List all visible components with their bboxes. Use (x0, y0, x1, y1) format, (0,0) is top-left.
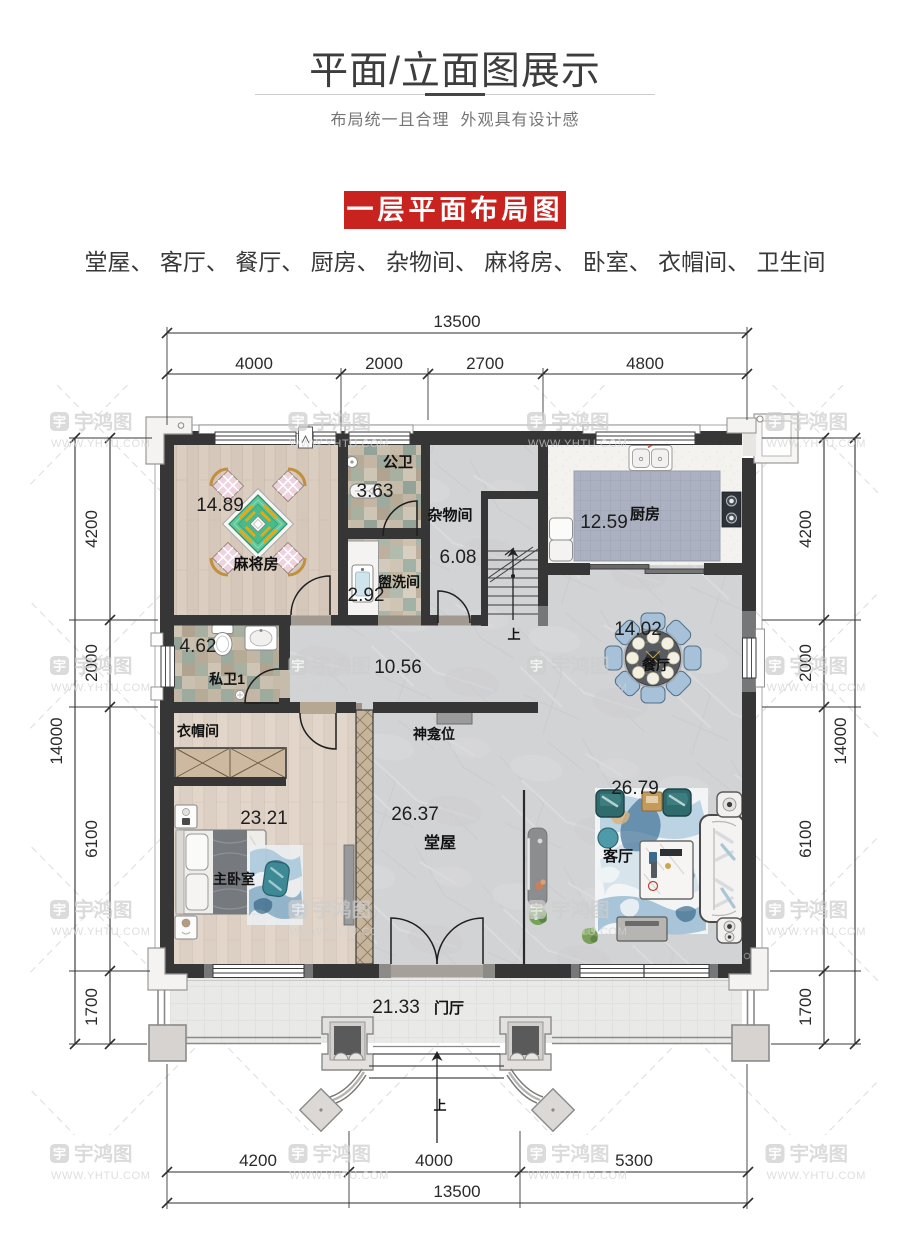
svg-text:3.63: 3.63 (357, 481, 394, 502)
svg-text:杂物间: 杂物间 (427, 506, 472, 524)
svg-text:门厅: 门厅 (434, 999, 464, 1017)
svg-text:14000: 14000 (47, 717, 66, 764)
svg-text:衣帽间: 衣帽间 (177, 723, 219, 739)
svg-text:2700: 2700 (466, 354, 504, 373)
svg-text:26.79: 26.79 (611, 778, 659, 799)
svg-text:26.37: 26.37 (391, 804, 439, 825)
svg-text:23.21: 23.21 (240, 808, 288, 829)
svg-text:6100: 6100 (796, 820, 815, 858)
svg-text:客厅: 客厅 (602, 847, 633, 865)
svg-text:14000: 14000 (831, 717, 850, 764)
svg-text:盥洗间: 盥洗间 (378, 574, 420, 590)
svg-text:4200: 4200 (82, 510, 101, 548)
svg-text:10.56: 10.56 (374, 657, 422, 678)
svg-text:堂屋: 堂屋 (424, 833, 456, 852)
svg-text:13500: 13500 (433, 1182, 480, 1201)
svg-text:13500: 13500 (433, 312, 480, 331)
svg-text:4.62: 4.62 (180, 636, 217, 657)
svg-text:21.33: 21.33 (372, 997, 420, 1018)
svg-text:公卫: 公卫 (383, 454, 413, 471)
svg-text:14.02: 14.02 (614, 619, 662, 640)
svg-text:5300: 5300 (615, 1151, 653, 1170)
svg-text:4000: 4000 (235, 354, 273, 373)
svg-text:主卧室: 主卧室 (213, 871, 255, 887)
svg-text:私卫1: 私卫1 (209, 671, 245, 687)
svg-text:厨房: 厨房 (630, 505, 660, 523)
svg-text:14.89: 14.89 (196, 495, 244, 516)
svg-text:12.59: 12.59 (580, 512, 628, 533)
svg-text:1700: 1700 (82, 988, 101, 1026)
svg-text:4000: 4000 (415, 1151, 453, 1170)
svg-text:6100: 6100 (82, 820, 101, 858)
svg-text:上: 上 (433, 1098, 446, 1113)
svg-text:4200: 4200 (239, 1151, 277, 1170)
svg-text:6.08: 6.08 (440, 547, 477, 568)
svg-text:4800: 4800 (626, 354, 664, 373)
svg-text:4200: 4200 (796, 510, 815, 548)
svg-text:神龛位: 神龛位 (413, 726, 455, 742)
svg-text:餐厅: 餐厅 (641, 657, 670, 673)
svg-text:2000: 2000 (365, 354, 403, 373)
svg-text:1700: 1700 (796, 988, 815, 1026)
svg-text:麻将房: 麻将房 (232, 555, 278, 573)
svg-text:上: 上 (507, 627, 520, 642)
